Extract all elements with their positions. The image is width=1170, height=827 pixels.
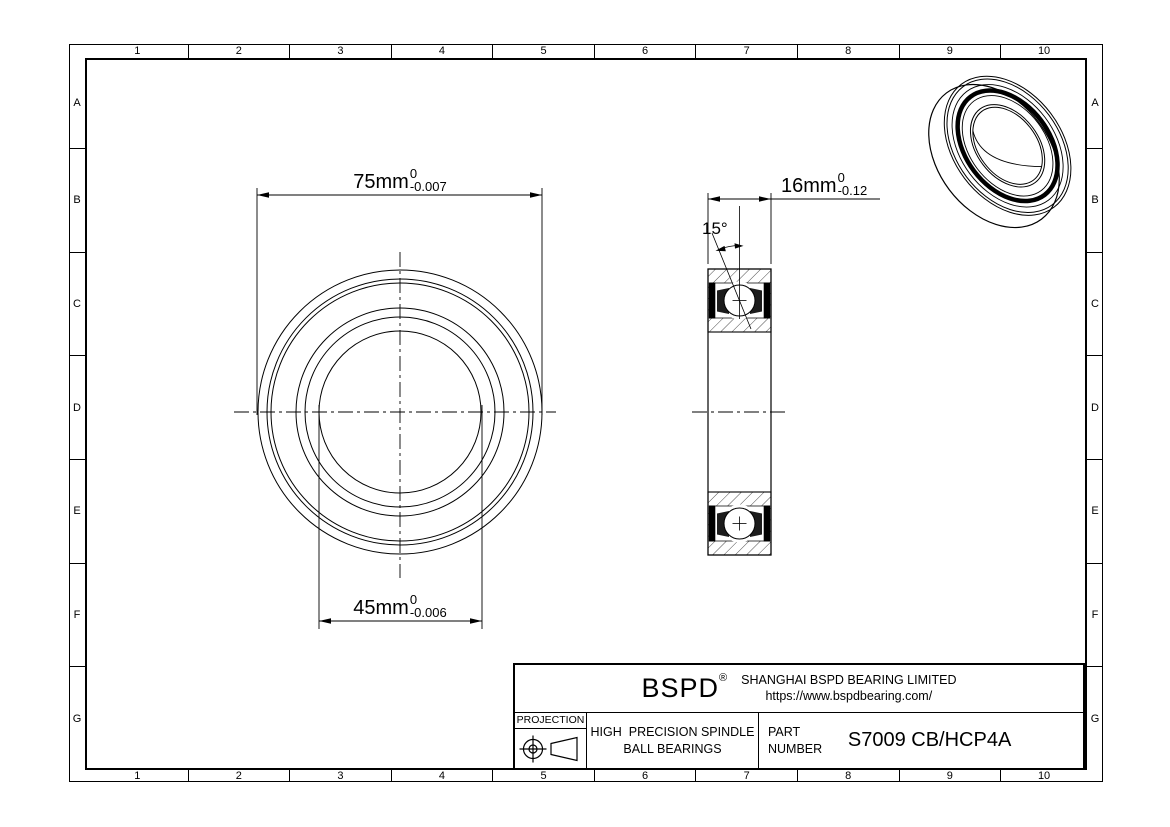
company-logo: BSPD® bbox=[642, 675, 728, 702]
section-view bbox=[692, 193, 880, 555]
title-block: BSPD® SHANGHAI BSPD BEARING LIMITED http… bbox=[513, 663, 1085, 770]
seal-left-top bbox=[709, 283, 716, 319]
product-line2: BALL BEARINGS bbox=[623, 741, 721, 758]
first-angle-projection-icon bbox=[515, 729, 586, 768]
iso-face-outer bbox=[918, 52, 1097, 240]
dimension-tolerance: 0 -0.12 bbox=[838, 171, 868, 197]
dimension-width-text: 16mm 0 -0.12 bbox=[781, 168, 867, 196]
seal-left-bottom bbox=[709, 506, 716, 542]
company-name: SHANGHAI BSPD BEARING LIMITED bbox=[741, 673, 956, 689]
product-line1: HIGH PRECISION SPINDLE bbox=[591, 724, 755, 741]
part-number-cell: PART NUMBER S7009 CB/HCP4A bbox=[758, 713, 1083, 768]
dimension-value: 75mm bbox=[353, 172, 409, 192]
isometric-view bbox=[902, 50, 1099, 253]
registered-mark: ® bbox=[719, 673, 727, 684]
iso-ring-edge bbox=[929, 63, 1086, 228]
contact-angle-label: 15° bbox=[702, 219, 728, 239]
projection-label: PROJECTION bbox=[515, 713, 586, 729]
title-block-detail-row: PROJECTION HIGH PRECISION SPINDLE BALL B… bbox=[515, 713, 1083, 768]
dimension-value: 45mm bbox=[353, 598, 409, 618]
dimension-tolerance: 0 -0.007 bbox=[410, 167, 447, 193]
title-block-company-row: BSPD® SHANGHAI BSPD BEARING LIMITED http… bbox=[515, 665, 1083, 713]
front-view-centerlines bbox=[234, 252, 556, 578]
iso-bore-outer bbox=[955, 90, 1060, 201]
engineering-drawing-sheet: { "grid": { "cols": ["1","2","3","4","5"… bbox=[0, 0, 1170, 827]
product-description-cell: HIGH PRECISION SPINDLE BALL BEARINGS bbox=[586, 713, 758, 768]
logo-text: BSPD bbox=[642, 675, 720, 702]
dimension-value: 16mm bbox=[781, 176, 837, 196]
projection-cell: PROJECTION bbox=[515, 713, 586, 768]
part-number-value: S7009 CB/HCP4A bbox=[822, 729, 1083, 752]
dimension-od-text: 75mm 0 -0.007 bbox=[300, 164, 500, 192]
front-view bbox=[234, 188, 556, 629]
dimension-tolerance: 0 -0.006 bbox=[410, 593, 447, 619]
dimension-width-lines bbox=[708, 193, 880, 264]
company-website: https://www.bspdbearing.com/ bbox=[741, 689, 956, 705]
part-label-line2: NUMBER bbox=[768, 741, 822, 758]
dimension-bore-text: 45mm 0 -0.006 bbox=[300, 590, 500, 618]
seal-right-top bbox=[764, 283, 771, 319]
seal-right-bottom bbox=[764, 506, 771, 542]
part-label-line1: PART bbox=[768, 724, 822, 741]
